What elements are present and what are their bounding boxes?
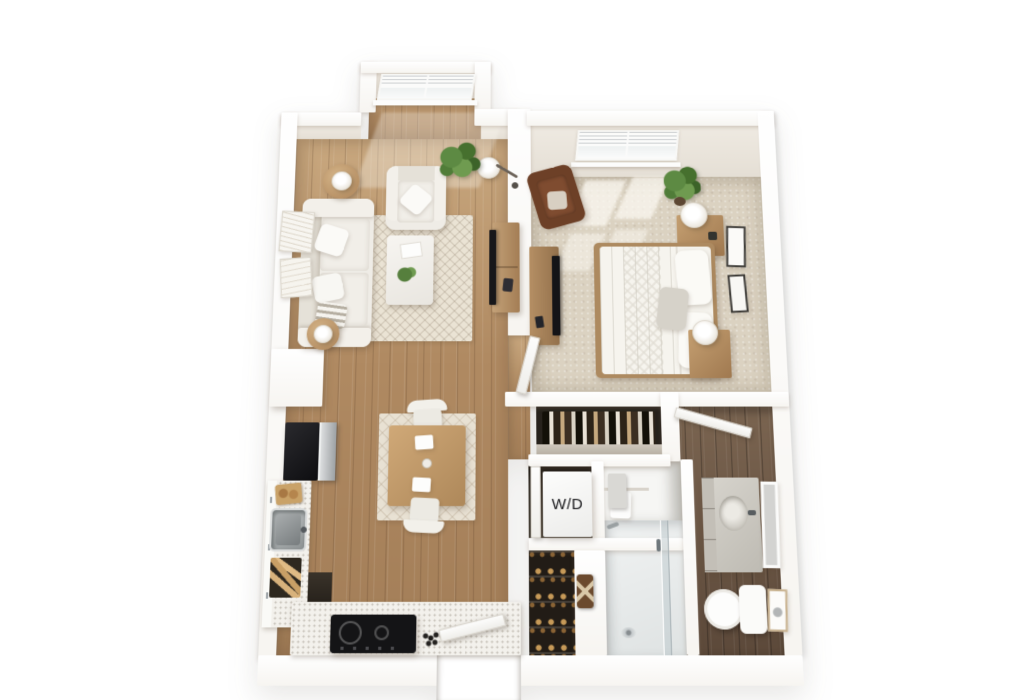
- bay-window-sill: [373, 100, 477, 105]
- laundry-closet-door: [530, 466, 541, 538]
- cooktop-knobs: [340, 647, 403, 650]
- bedroom-window-pane: [628, 132, 677, 144]
- sink-faucet: [301, 527, 307, 533]
- place-setting: [415, 435, 434, 450]
- dining-table: [387, 425, 465, 506]
- bedroom-window: [575, 130, 679, 160]
- closet-floor-strip: [536, 444, 662, 454]
- washer-dryer-label: W/D: [543, 471, 593, 536]
- bay-window-pane: [379, 88, 425, 99]
- bathroom-wall-art: [767, 589, 787, 632]
- tv-console-door-seam: [494, 266, 517, 268]
- cooktop: [330, 615, 417, 654]
- cooktop-burner: [374, 625, 389, 640]
- nightstand-lamp: [680, 202, 708, 228]
- tv-console: [492, 223, 520, 313]
- bedroom-wall-art: [727, 274, 748, 313]
- bedroom-wall-art: [726, 226, 746, 268]
- living-room-plant: [438, 139, 481, 182]
- coffee-table-book: [400, 242, 423, 260]
- vanity-faucet: [748, 510, 756, 515]
- coffee-table-plant: [394, 263, 418, 286]
- cooktop-burner: [338, 621, 362, 645]
- shower-bench: [608, 474, 627, 509]
- dining-chair-back: [403, 519, 445, 534]
- place-setting: [412, 477, 431, 492]
- bay-window-pane: [381, 76, 427, 86]
- stacked-washer-dryer: W/D: [543, 471, 593, 536]
- south-wall: [257, 655, 804, 685]
- living-wall-face: [297, 126, 361, 139]
- living-tv: [489, 230, 496, 305]
- bedroom-south-wall: [505, 392, 789, 407]
- shoe-closet-interior: [529, 550, 576, 655]
- bedroom-north-wall: [527, 111, 775, 126]
- bathroom-vanity: [701, 478, 762, 573]
- bedroom-window-pane: [577, 146, 626, 157]
- floor-lamp-base: [512, 182, 519, 188]
- floorplan: W/D: [195, 55, 809, 697]
- sink-basin: [275, 514, 301, 545]
- media-accessory: [502, 278, 513, 292]
- refrigerator-door-stainless: [318, 422, 337, 480]
- refrigerator: [283, 422, 320, 480]
- table-centerpiece: [423, 459, 431, 467]
- bay-wall-top: [361, 62, 491, 73]
- entry-porch-recess: [436, 655, 521, 700]
- bedroom-window-pane: [579, 132, 628, 144]
- nightstand-clock: [708, 232, 717, 240]
- leaning-wall-art: [278, 211, 315, 253]
- vanity-drawers: [701, 478, 717, 573]
- bay-window-pane: [425, 88, 471, 99]
- armchair: [385, 166, 446, 230]
- accent-chair-cushion: [547, 191, 568, 211]
- open-shelf-bread: [269, 558, 302, 598]
- cutting-board-with-bread: [275, 482, 303, 505]
- dining-chair: [402, 497, 445, 536]
- leaning-wall-art: [280, 257, 313, 299]
- shower-drain: [621, 627, 636, 638]
- vanity-sink: [718, 496, 748, 531]
- toilet-tank: [739, 585, 768, 634]
- laundry-east-wall: [591, 461, 605, 543]
- nightstand-lamp: [692, 320, 719, 345]
- shoe-rack-strap-object: [577, 574, 594, 608]
- bay-window: [377, 74, 476, 100]
- floorplan-render: W/D: [0, 0, 1024, 700]
- kitchen-sink: [269, 508, 308, 551]
- hanging-clothes: [542, 412, 656, 446]
- leaning-mirror: [760, 481, 780, 568]
- shower-door-handle: [656, 539, 660, 551]
- dresser-phone: [535, 316, 545, 328]
- bedroom-tv: [552, 256, 561, 336]
- bay-window-pane: [427, 76, 473, 86]
- bed-throw-pillow: [656, 286, 689, 331]
- kitchen-bulkhead-wall: [269, 349, 324, 407]
- bedroom-window-pane: [627, 146, 676, 157]
- closet-east-wall: [660, 392, 680, 462]
- coffee-table: [386, 235, 434, 304]
